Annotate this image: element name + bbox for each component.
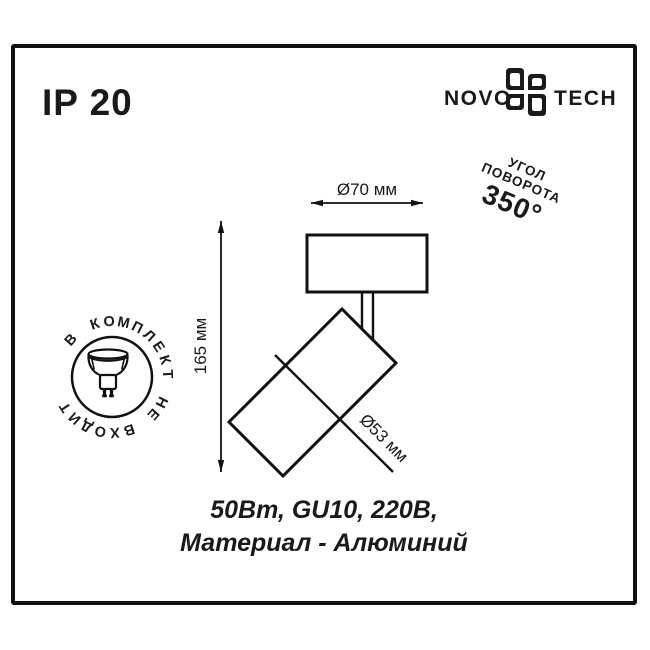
mounting-plate <box>307 235 427 292</box>
gu10-lamp-icon <box>88 350 127 398</box>
stamp-ring-letter: В <box>122 420 137 438</box>
stamp-ring-letter: Х <box>109 424 120 441</box>
spec-text: 50Вт, GU10, 220В, Материал - Алюминий <box>11 494 637 560</box>
spec-line-material: Материал - Алюминий <box>11 527 637 560</box>
width-dimension-label: Ø70 мм <box>337 180 397 199</box>
height-dimension-label: 165 мм <box>191 318 210 374</box>
stamp-ring-letter: К <box>155 353 173 367</box>
logo-text-right: TECH <box>554 87 617 111</box>
head-diameter-label: Ø53 мм <box>356 410 412 466</box>
product-spec-sheet: IP 20 NOVO TECH УГОЛ ПОВОРОТА 350° <box>0 0 650 650</box>
logo-text-left: NOVO <box>444 87 512 111</box>
stamp-ring-letter: Е <box>143 405 162 423</box>
novotech-logo: NOVO TECH <box>444 58 634 122</box>
ip-rating-label: IP 20 <box>42 82 133 124</box>
stamp-ring-letter: В <box>62 331 81 349</box>
stamp-ring-letter: М <box>116 314 131 332</box>
not-included-stamp: В К О М П Л Е К Т Н Е В Х О Д И Т <box>37 302 187 452</box>
stamp-ring-letter: Т <box>159 369 175 379</box>
novotech-flower-icon <box>504 62 548 120</box>
stamp-ring-letter: Т <box>57 399 75 415</box>
stamp-ring-letter: К <box>88 316 102 334</box>
spotlight-technical-drawing: Ø70 мм 165 мм Ø53 мм <box>180 160 460 490</box>
stamp-ring-letter: Е <box>149 339 168 356</box>
stamp-ring-letter: О <box>103 314 115 331</box>
stamp-ring-letter: О <box>93 422 107 440</box>
spec-line-power: 50Вт, GU10, 220В, <box>11 494 637 527</box>
